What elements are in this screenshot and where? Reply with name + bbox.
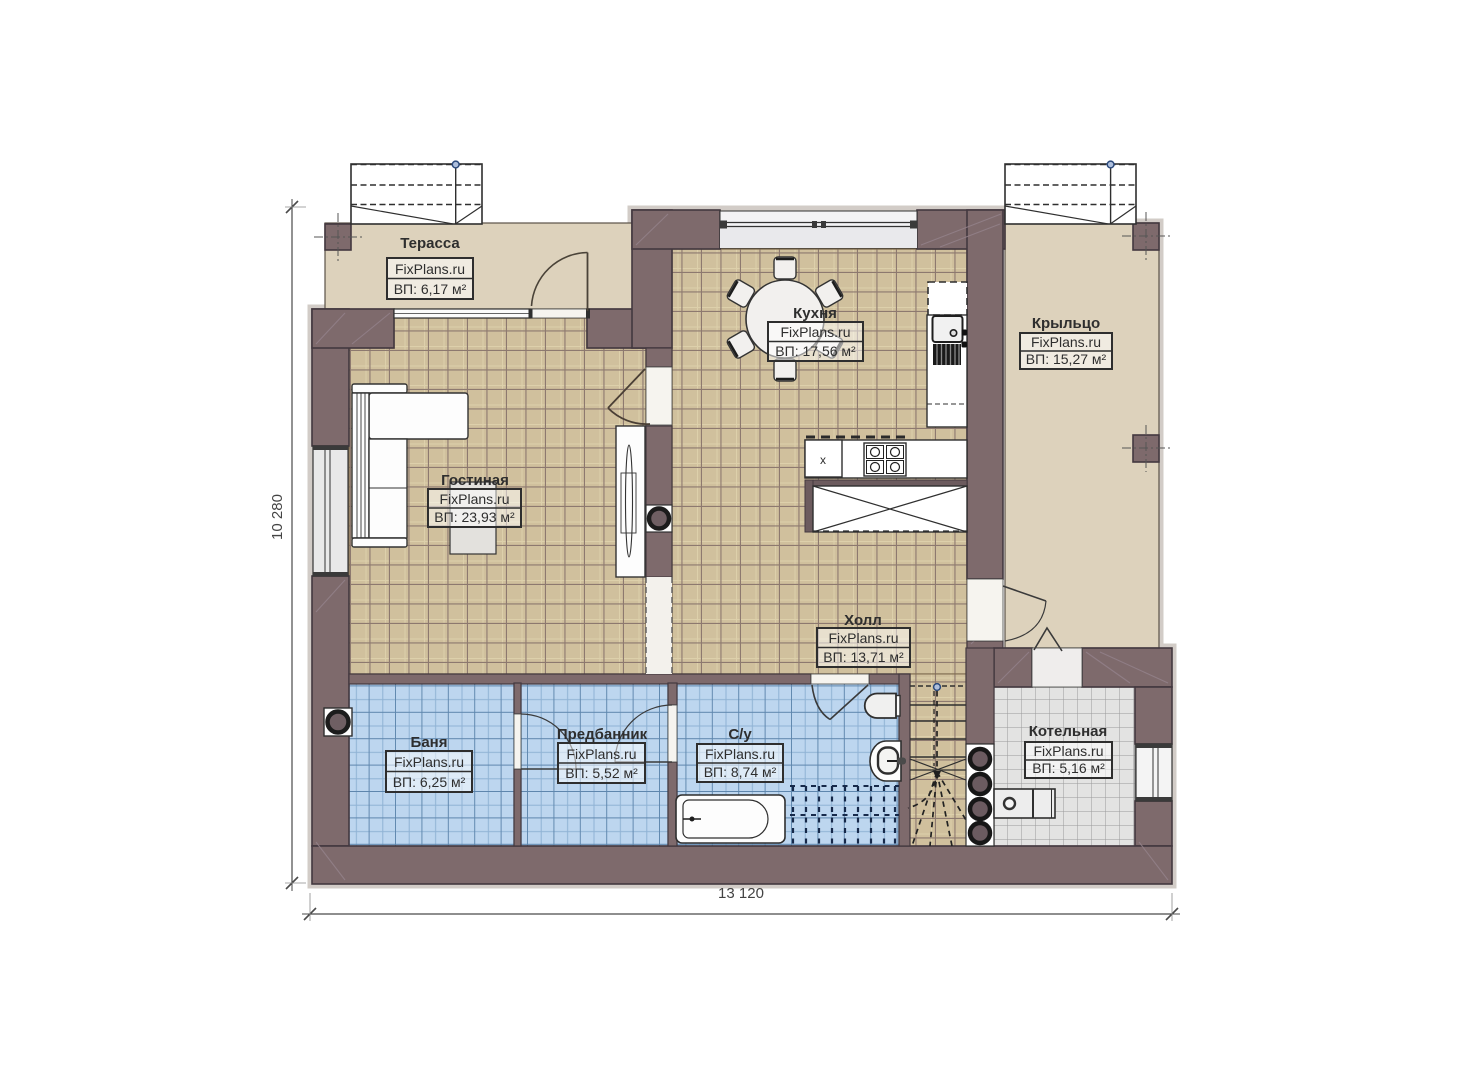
svg-text:x: x — [820, 453, 826, 467]
svg-text:FixPlans.ru: FixPlans.ru — [566, 746, 636, 762]
svg-text:13 120: 13 120 — [718, 885, 764, 902]
svg-text:10 280: 10 280 — [269, 494, 286, 540]
svg-text:ВП: 8,74 м²: ВП: 8,74 м² — [704, 764, 777, 780]
svg-text:ВП: 6,25 м²: ВП: 6,25 м² — [393, 774, 466, 790]
svg-text:Котельная: Котельная — [1029, 723, 1108, 740]
svg-text:FixPlans.ru: FixPlans.ru — [1033, 743, 1103, 759]
svg-text:FixPlans.ru: FixPlans.ru — [1031, 334, 1101, 350]
svg-text:FixPlans.ru: FixPlans.ru — [780, 324, 850, 340]
svg-text:Гостиная: Гостиная — [441, 472, 509, 489]
svg-text:FixPlans.ru: FixPlans.ru — [394, 754, 464, 770]
svg-text:ВП: 23,93 м²: ВП: 23,93 м² — [434, 509, 515, 525]
svg-text:Холл: Холл — [844, 612, 882, 629]
svg-text:FixPlans.ru: FixPlans.ru — [828, 630, 898, 646]
svg-text:Предбанник: Предбанник — [557, 726, 648, 743]
svg-text:Кухня: Кухня — [793, 305, 837, 322]
svg-text:С/у: С/у — [728, 726, 752, 743]
svg-text:ВП: 17,56 м²: ВП: 17,56 м² — [775, 343, 856, 359]
svg-text:ВП: 5,16 м²: ВП: 5,16 м² — [1032, 760, 1105, 776]
svg-text:FixPlans.ru: FixPlans.ru — [439, 491, 509, 507]
svg-text:ВП: 13,71 м²: ВП: 13,71 м² — [823, 649, 904, 665]
svg-text:Терасса: Терасса — [400, 235, 460, 252]
svg-text:Крыльцо: Крыльцо — [1032, 315, 1100, 332]
svg-text:FixPlans.ru: FixPlans.ru — [395, 261, 465, 277]
svg-text:FixPlans.ru: FixPlans.ru — [705, 746, 775, 762]
svg-text:ВП: 15,27 м²: ВП: 15,27 м² — [1026, 351, 1107, 367]
svg-text:ВП: 6,17 м²: ВП: 6,17 м² — [394, 281, 467, 297]
svg-text:Баня: Баня — [411, 734, 448, 751]
svg-text:ВП: 5,52 м²: ВП: 5,52 м² — [565, 765, 638, 781]
